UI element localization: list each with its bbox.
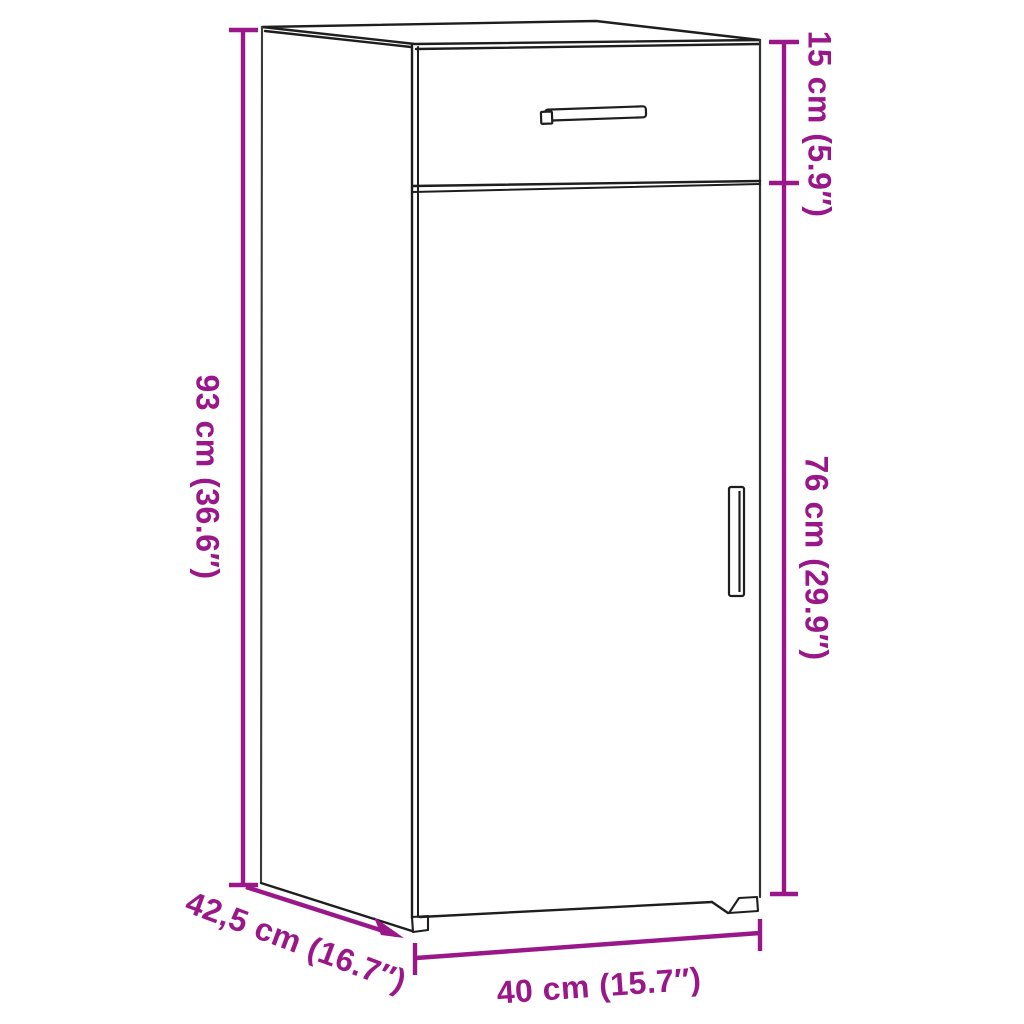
base-bottom-edge [712,902,728,913]
drawer-handle-mount [541,112,552,124]
cabinet-top-face [262,21,760,44]
dimension-lines [229,30,799,975]
front-left-foot [412,916,428,932]
door-bottom-edge [420,902,712,917]
height-dimension-label: 93 cm (36.6″) [189,374,226,579]
upper-section-dimension-label: 15 cm (5.9″) [801,31,838,218]
top-panel-front-edge-line [416,44,759,49]
front-right-foot [729,897,758,913]
cabinet-line-drawing [0,0,1024,1024]
drawer-handle-bar [545,106,646,121]
door-handle-bar [729,487,744,596]
cabinet-outline [261,21,760,932]
diagram-canvas: 93 cm (36.6″) 15 cm (5.9″) 76 cm (29.9″)… [0,0,1024,1024]
top-panel-side-edge-line [265,31,411,47]
door-handle [729,487,744,596]
width-dimension-line [416,933,760,958]
cabinet-back-left-edge [261,27,262,883]
lower-section-dimension-label: 76 cm (29.9″) [798,455,835,660]
drawer-handle [541,106,646,124]
